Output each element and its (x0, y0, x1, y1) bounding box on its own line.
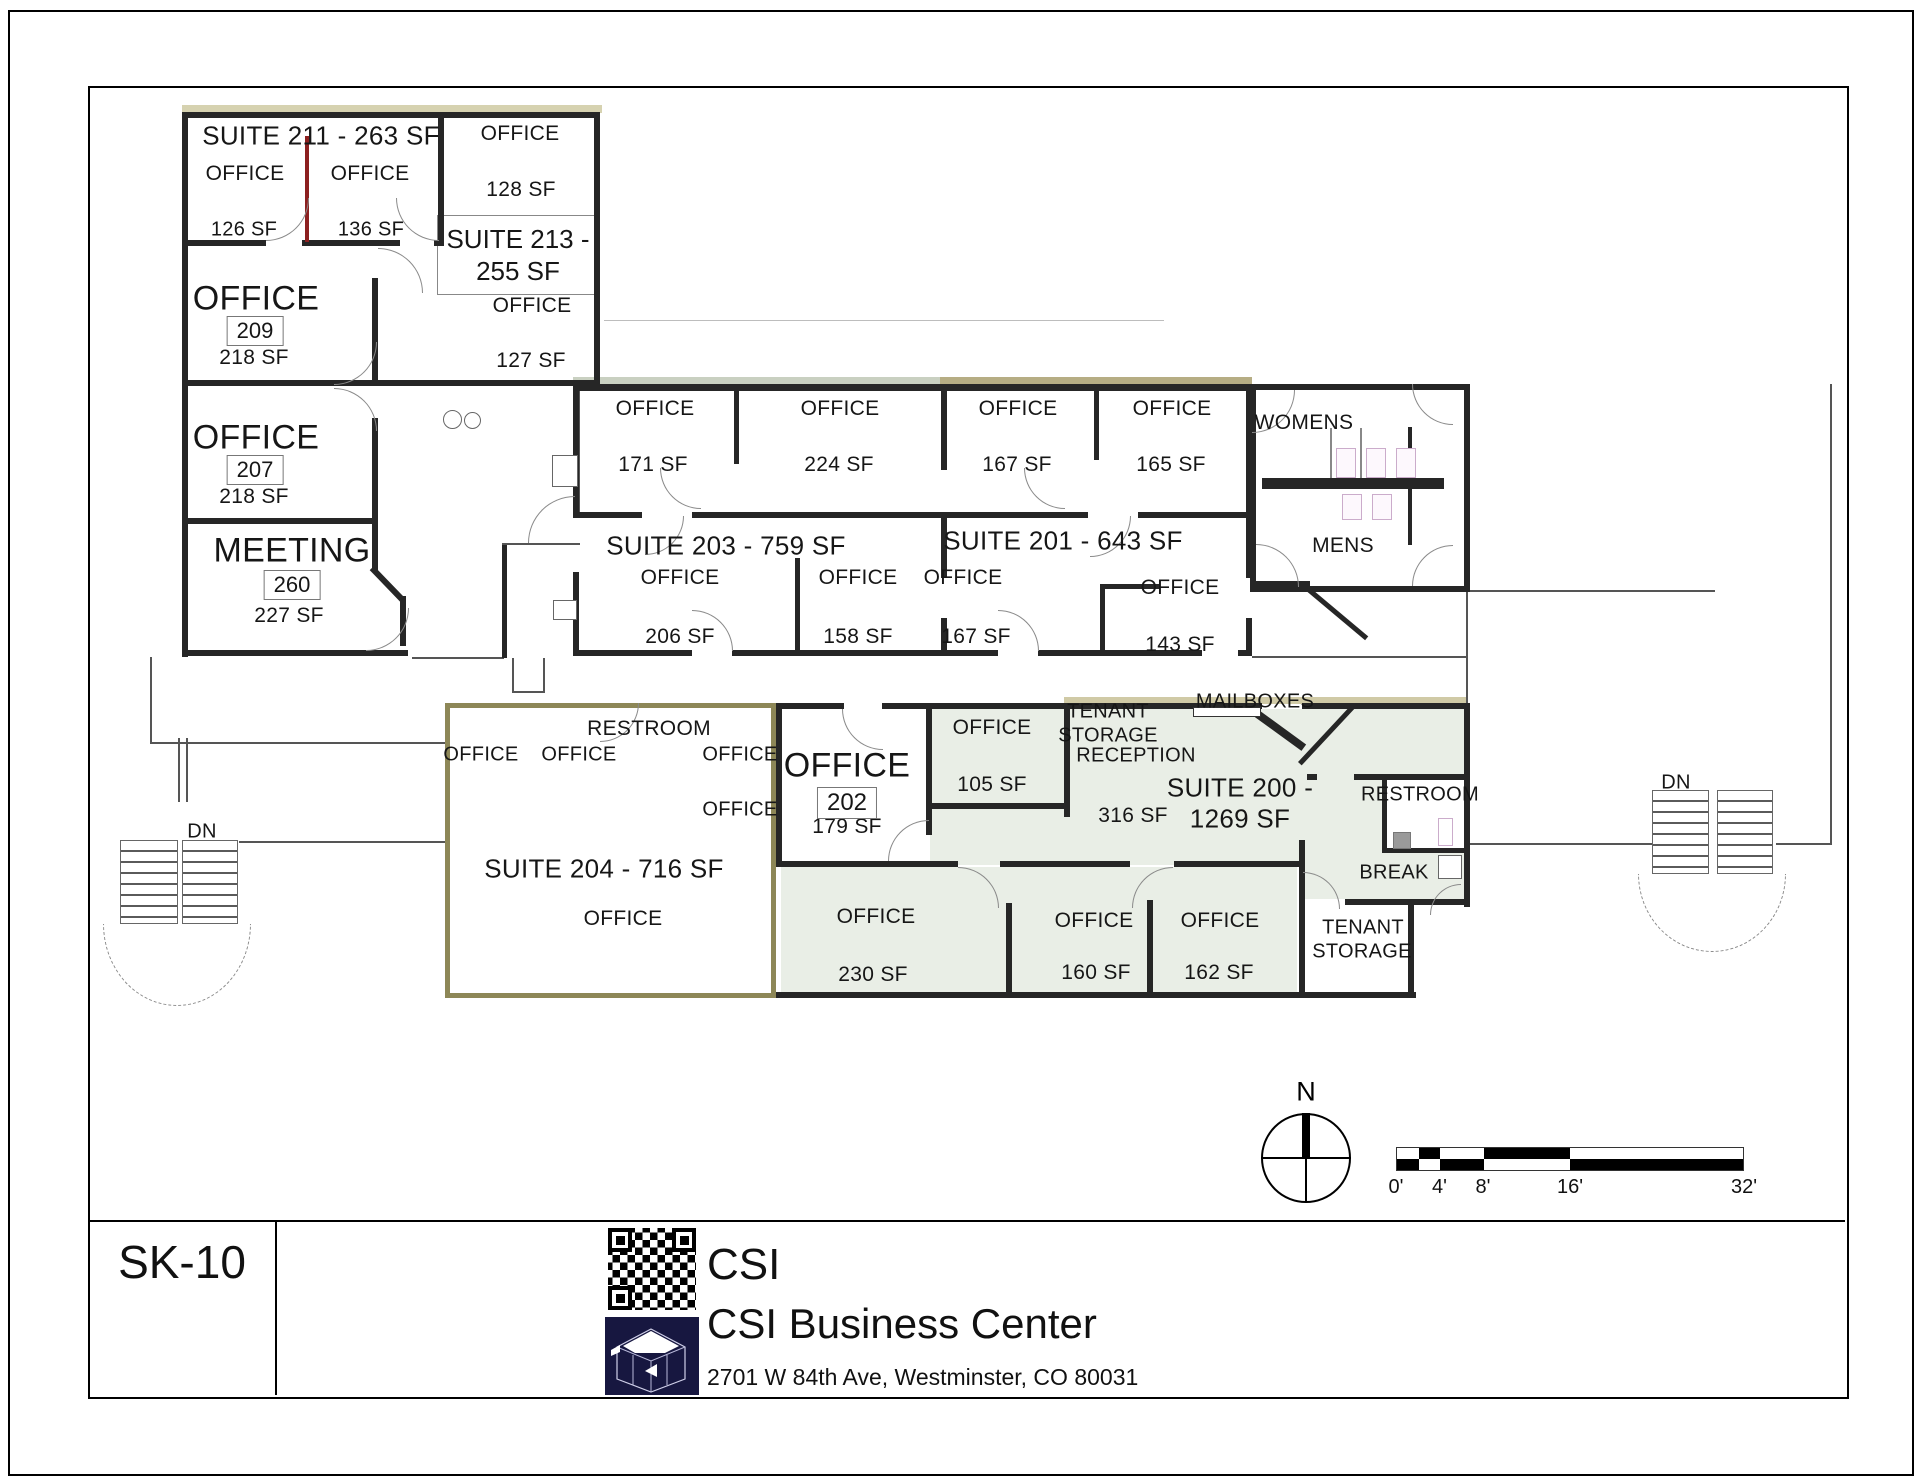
mens-label: MENS (1312, 534, 1374, 558)
mailboxes-label: MAILBOXES (1196, 691, 1314, 714)
scale-bar-segment (1397, 1159, 1419, 1170)
area-label: 136 SF (338, 219, 404, 242)
scale-bar-segment (1440, 1159, 1483, 1170)
area-label: 105 SF (957, 773, 1027, 797)
wall (372, 418, 378, 520)
wall (594, 112, 600, 386)
stair-flight (120, 840, 178, 924)
area-label: 128 SF (486, 178, 556, 202)
wall (926, 703, 932, 835)
thin-wall-line (1466, 592, 1468, 703)
office-label: OFFICE (616, 397, 695, 421)
office-label: OFFICE (837, 905, 916, 929)
plumbing-fixture (552, 455, 578, 487)
wall (776, 703, 844, 709)
scale-bar (1396, 1147, 1744, 1171)
titleblock-divider (88, 1220, 1845, 1222)
office-label: OFFICE (1141, 576, 1220, 600)
scale-bar-segment (1484, 1159, 1571, 1170)
wall (776, 703, 782, 867)
office-label: OFFICE (784, 747, 910, 786)
project-name: CSI Business Center (707, 1300, 1097, 1348)
area-label: 162 SF (1184, 961, 1254, 985)
thin-wall-line (604, 320, 1164, 321)
break-label: BREAK (1359, 862, 1428, 885)
office-label: OFFICE (702, 799, 777, 822)
restroom-label: RESTROOM (1361, 784, 1479, 807)
thin-wall-line (512, 691, 545, 693)
scale-tick-label: 32' (1731, 1176, 1757, 1199)
area-label: 206 SF (645, 625, 715, 649)
wall (1147, 900, 1153, 998)
wall (502, 545, 507, 658)
wall (573, 650, 692, 656)
wall (1094, 384, 1099, 460)
tenant-storage-label: TENANT (1322, 917, 1404, 940)
csi-logo-icon (605, 1317, 699, 1395)
thin-wall-line (1330, 428, 1332, 478)
wall (1302, 703, 1468, 709)
wall (1138, 512, 1252, 518)
wall (795, 558, 800, 656)
wall (1408, 427, 1412, 545)
sheet-code: SK-10 (118, 1235, 246, 1289)
wall (372, 524, 378, 572)
stair-flight (1717, 790, 1773, 874)
room-number-box: 209 (227, 316, 284, 346)
wall (1006, 903, 1012, 998)
thin-wall-line (239, 841, 445, 843)
suite-200-title: 1269 SF (1190, 804, 1290, 835)
tenant-storage-label: STORAGE (1312, 941, 1412, 964)
project-address: 2701 W 84th Ave, Westminster, CO 80031 (707, 1364, 1138, 1391)
wall (734, 384, 739, 464)
suite-204-title: SUITE 204 - 716 SF (484, 854, 724, 885)
office-label: OFFICE (481, 122, 560, 146)
suite-213-label-box: SUITE 213 - 255 SF (437, 215, 599, 295)
area-label: 158 SF (823, 625, 893, 649)
wall (776, 861, 958, 867)
thin-wall-line (1470, 843, 1652, 845)
suite-200-title: SUITE 200 - (1167, 773, 1313, 804)
thin-wall-line (150, 657, 152, 744)
scale-bar-segment (1419, 1159, 1441, 1170)
dn-label: DN (1661, 772, 1691, 795)
office-label: OFFICE (702, 744, 777, 767)
reception-label: RECEPTION (1076, 745, 1195, 768)
scale-tick-label: 8' (1476, 1176, 1491, 1199)
scale-bar-segment (1440, 1148, 1483, 1159)
thin-wall-line (512, 658, 514, 693)
sheet-page: SUITE 213 - 255 SF SUITE 211 - 263 SFOFF… (0, 0, 1920, 1484)
stair-flight (1652, 790, 1709, 874)
plumbing-fixture (1438, 818, 1453, 846)
wall (182, 112, 600, 118)
wall (372, 278, 378, 386)
plumbing-fixture (1342, 494, 1362, 520)
scale-bar-row (1397, 1159, 1743, 1170)
tenant-storage-label: TENANT (1067, 701, 1149, 724)
scale-bar-segment (1419, 1148, 1441, 1159)
room-number-box: 260 (264, 570, 321, 600)
office-label: OFFICE (1181, 909, 1260, 933)
wall (1464, 384, 1470, 592)
plumbing-fixture (1438, 855, 1462, 879)
office-label: OFFICE (1055, 909, 1134, 933)
wall (932, 803, 1064, 809)
scale-bar-segment (1570, 1148, 1743, 1159)
wall (1100, 584, 1105, 656)
suite-213-area: 255 SF (476, 255, 560, 288)
area-label: 127 SF (496, 349, 566, 373)
area-label: 160 SF (1061, 961, 1131, 985)
area-label: 165 SF (1136, 453, 1206, 477)
area-label: 167 SF (941, 625, 1011, 649)
plumbing-fixture (1372, 494, 1392, 520)
wall (776, 992, 1416, 998)
thin-wall-line (412, 657, 504, 659)
red-wall (305, 136, 309, 242)
drinking-fountain-icon (464, 412, 481, 429)
restroom-label: RESTROOM (587, 717, 711, 741)
thin-wall-line (1252, 656, 1466, 658)
qr-code-icon (605, 1225, 699, 1313)
wall (941, 384, 947, 470)
plumbing-fixture (1396, 448, 1416, 478)
office-label: OFFICE (541, 744, 616, 767)
wall (732, 650, 998, 656)
titleblock-divider (275, 1220, 277, 1395)
office-label: OFFICE (331, 162, 410, 186)
area-label: 126 SF (211, 219, 277, 242)
scale-bar-segment (1484, 1148, 1571, 1159)
suite-213-title: SUITE 213 - (446, 223, 589, 256)
wall (1238, 650, 1252, 656)
suite-203-title: SUITE 203 - 759 SF (606, 531, 846, 562)
thin-wall-line (1360, 428, 1362, 478)
thin-wall-line (178, 738, 180, 802)
room-number-box: 202 (817, 787, 877, 819)
wall (1299, 840, 1305, 998)
scale-tick-label: 0' (1389, 1176, 1404, 1199)
suite-201-title: SUITE 201 - 643 SF (943, 526, 1183, 557)
office-label: OFFICE (206, 162, 285, 186)
stair-flight (182, 840, 238, 924)
office-label: OFFICE (801, 397, 880, 421)
office-label: OFFICE (443, 744, 518, 767)
suite-211-title: SUITE 211 - 263 SF (202, 121, 440, 152)
thin-wall-line (1830, 384, 1832, 844)
area-label: 224 SF (804, 453, 874, 477)
area-label: 230 SF (838, 963, 908, 987)
plumbing-fixture (1393, 832, 1411, 849)
plumbing-fixture (1366, 448, 1386, 478)
room-number-box: 207 (227, 455, 284, 485)
office-label: OFFICE (584, 907, 663, 931)
area-label: 167 SF (982, 453, 1052, 477)
wall (692, 512, 1088, 518)
scale-tick-label: 4' (1432, 1176, 1447, 1199)
area-label: 316 SF (1098, 804, 1168, 828)
area-label: 218 SF (219, 346, 289, 370)
dn-label: DN (187, 821, 217, 844)
thin-wall-line (1776, 843, 1832, 845)
office-label: OFFICE (979, 397, 1058, 421)
scale-bar-segment (1570, 1159, 1743, 1170)
plumbing-fixture (1336, 448, 1356, 478)
thin-wall-line (1468, 590, 1715, 592)
thin-wall-line (502, 543, 580, 545)
wall (182, 518, 378, 524)
wall (1174, 861, 1304, 867)
area-label: 218 SF (219, 485, 289, 509)
area-label: 143 SF (1145, 633, 1215, 657)
scale-bar-row (1397, 1148, 1743, 1159)
womens-label: WOMENS (1255, 411, 1354, 435)
thin-wall-line (543, 658, 545, 693)
company-name: CSI (707, 1240, 780, 1290)
thin-wall-line (186, 738, 188, 802)
wall (182, 650, 408, 656)
office-label: OFFICE (953, 716, 1032, 740)
drinking-fountain-icon (443, 410, 462, 429)
scale-tick-label: 16' (1557, 1176, 1583, 1199)
office-label: OFFICE (193, 280, 319, 319)
area-label: 227 SF (254, 604, 324, 628)
office-label: OFFICE (641, 566, 720, 590)
north-needle-icon (1302, 1113, 1310, 1159)
wall (573, 512, 642, 518)
wall (1354, 774, 1468, 780)
area-label: 171 SF (618, 453, 688, 477)
wall (182, 380, 600, 386)
office-label: OFFICE (924, 566, 1003, 590)
thin-wall-line (152, 742, 445, 744)
meeting-label: MEETING (214, 532, 371, 571)
office-label: OFFICE (1133, 397, 1212, 421)
office-label: OFFICE (819, 566, 898, 590)
scale-bar-segment (1397, 1148, 1419, 1159)
wall (1262, 478, 1444, 489)
wall (573, 384, 1252, 391)
plumbing-fixture (553, 600, 577, 620)
wall (1000, 861, 1130, 867)
office-label: OFFICE (493, 294, 572, 318)
office-label: OFFICE (193, 419, 319, 458)
north-label: N (1296, 1077, 1316, 1108)
